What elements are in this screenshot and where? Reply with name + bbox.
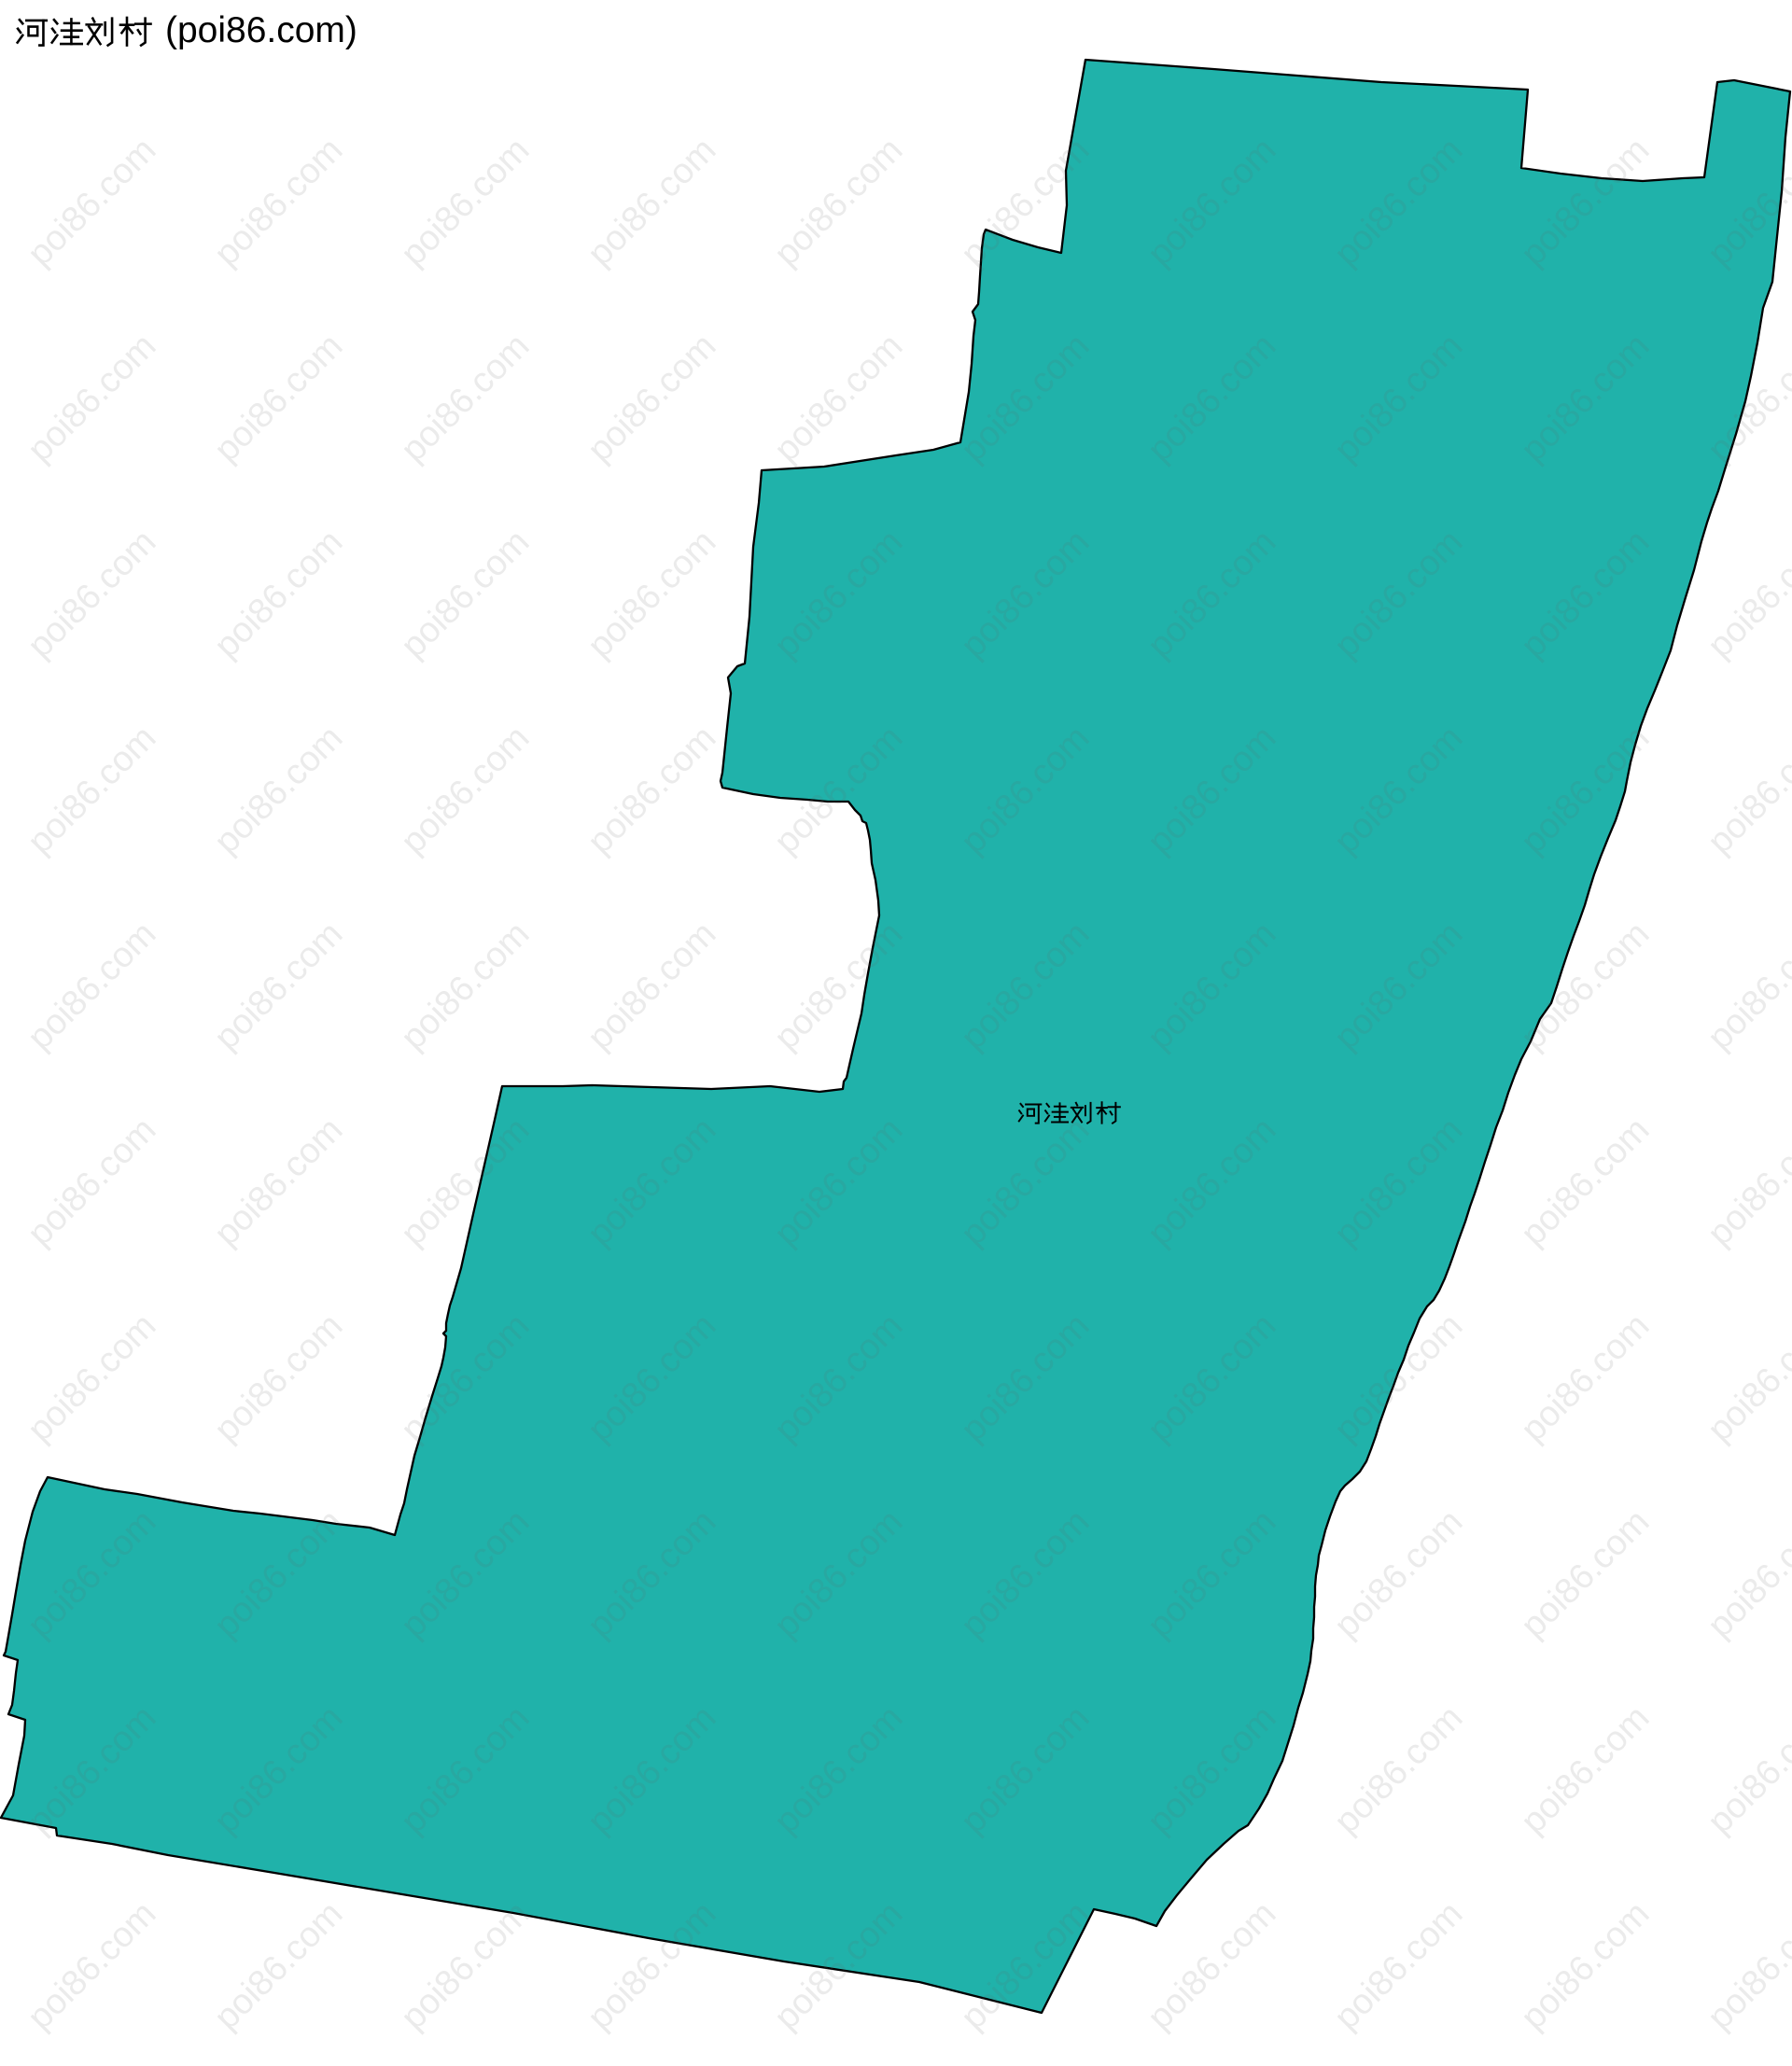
svg-text:(poi86.com): (poi86.com)	[165, 10, 357, 50]
